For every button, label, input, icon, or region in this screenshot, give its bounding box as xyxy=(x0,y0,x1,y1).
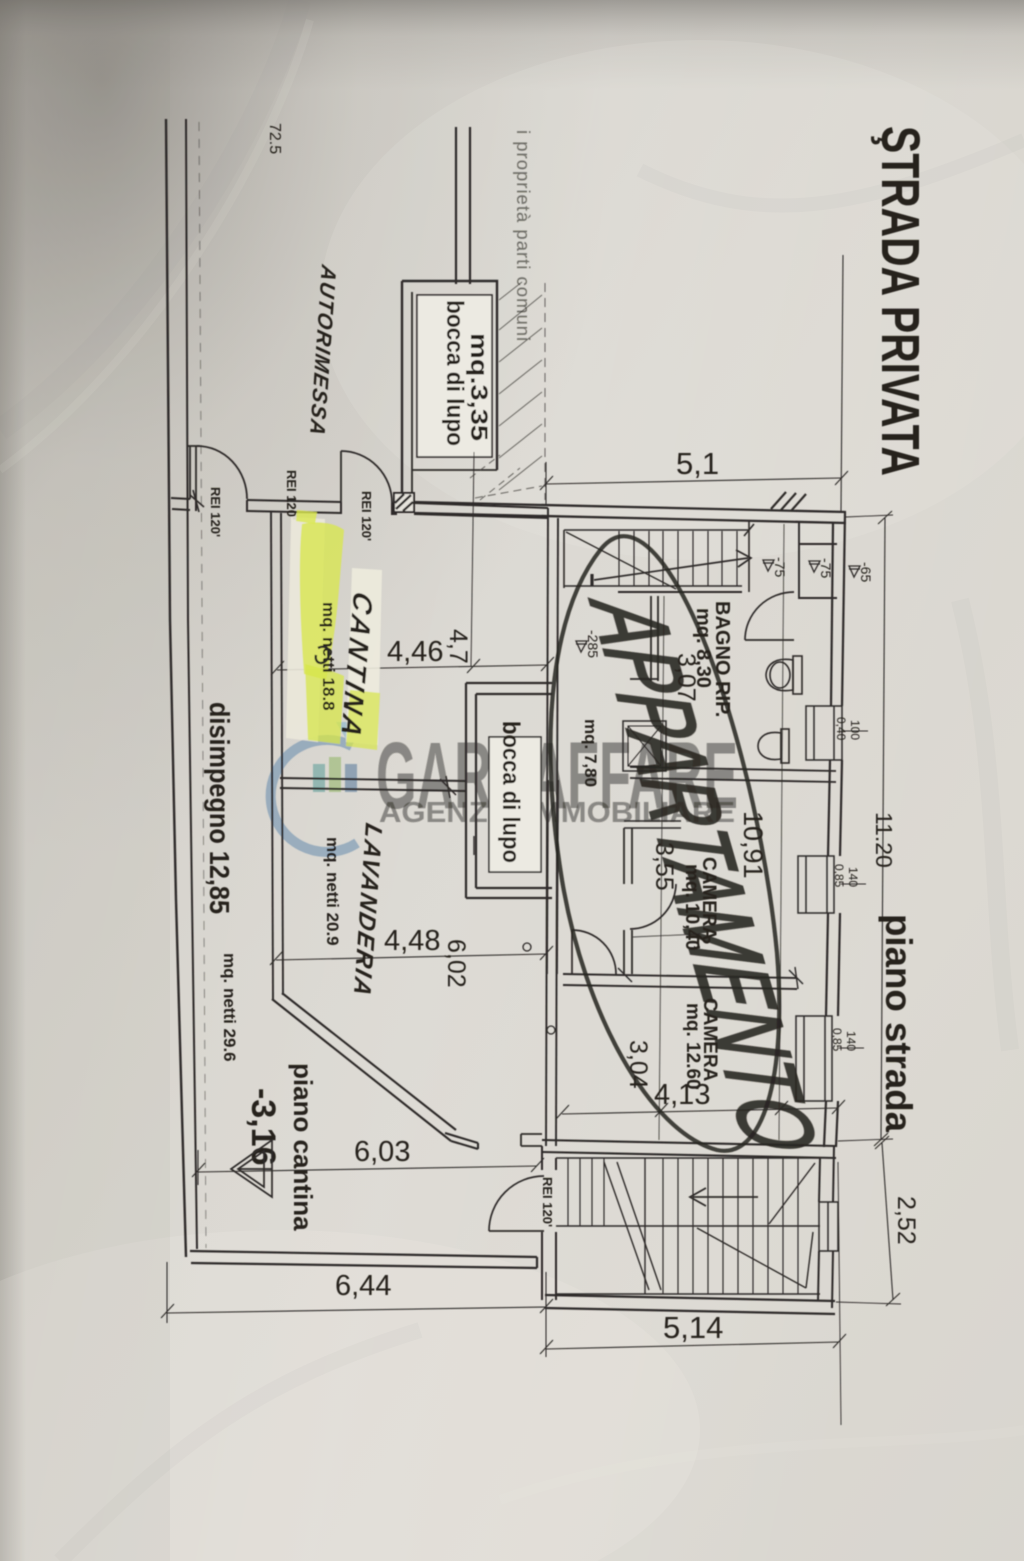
svg-text:6,44: 6,44 xyxy=(335,1270,391,1302)
svg-text:2,52: 2,52 xyxy=(892,1196,920,1245)
svg-text:0,85: 0,85 xyxy=(832,864,846,888)
svg-text:mq. 7,80: mq. 7,80 xyxy=(581,719,600,787)
svg-text:5,14: 5,14 xyxy=(663,1310,723,1345)
svg-text:ŞTRADA PRIVATA: ŞTRADA PRIVATA xyxy=(870,126,930,476)
svg-text:REI 120': REI 120' xyxy=(208,487,223,537)
svg-text:piano cantina: piano cantina xyxy=(288,1063,318,1231)
svg-text:mq.3,35: mq.3,35 xyxy=(465,333,492,441)
svg-text:4,7: 4,7 xyxy=(444,629,472,664)
svg-text:4,48: 4,48 xyxy=(384,925,440,957)
svg-text:bocca di lupo: bocca di lupo xyxy=(441,300,468,446)
svg-text:piano strada: piano strada xyxy=(878,914,919,1132)
svg-text:mq. netti 20.9: mq. netti 20.9 xyxy=(323,837,342,946)
svg-text:REI 120': REI 120' xyxy=(359,491,374,541)
svg-text:-65: -65 xyxy=(858,562,874,582)
svg-text:100: 100 xyxy=(848,720,862,740)
svg-text:5,1: 5,1 xyxy=(676,446,719,481)
svg-text:mq. netti 29.6: mq. netti 29.6 xyxy=(220,953,239,1062)
svg-text:i proprietà parti comuni: i proprietà parti comuni xyxy=(513,130,534,342)
svg-text:-75: -75 xyxy=(772,557,788,577)
svg-text:-75: -75 xyxy=(818,558,834,578)
svg-text:4,46: 4,46 xyxy=(387,636,443,668)
svg-text:REI 120': REI 120' xyxy=(540,1177,555,1227)
svg-text:140: 140 xyxy=(844,1031,858,1051)
svg-text:6,02: 6,02 xyxy=(442,939,470,988)
svg-text:0,85: 0,85 xyxy=(830,1028,844,1052)
svg-text:bocca di lupo: bocca di lupo xyxy=(497,721,524,863)
svg-text:140: 140 xyxy=(846,867,860,887)
svg-text:REI 120': REI 120' xyxy=(284,470,299,520)
svg-text:-3,16: -3,16 xyxy=(244,1088,282,1166)
svg-text:6,03: 6,03 xyxy=(354,1136,410,1168)
svg-text:4,13: 4,13 xyxy=(654,1079,710,1111)
svg-text:disimpegno 12,85: disimpegno 12,85 xyxy=(204,702,235,914)
svg-text:0,40: 0,40 xyxy=(834,717,848,741)
svg-text:11.20: 11.20 xyxy=(871,812,897,868)
svg-text:72.5: 72.5 xyxy=(266,123,283,154)
